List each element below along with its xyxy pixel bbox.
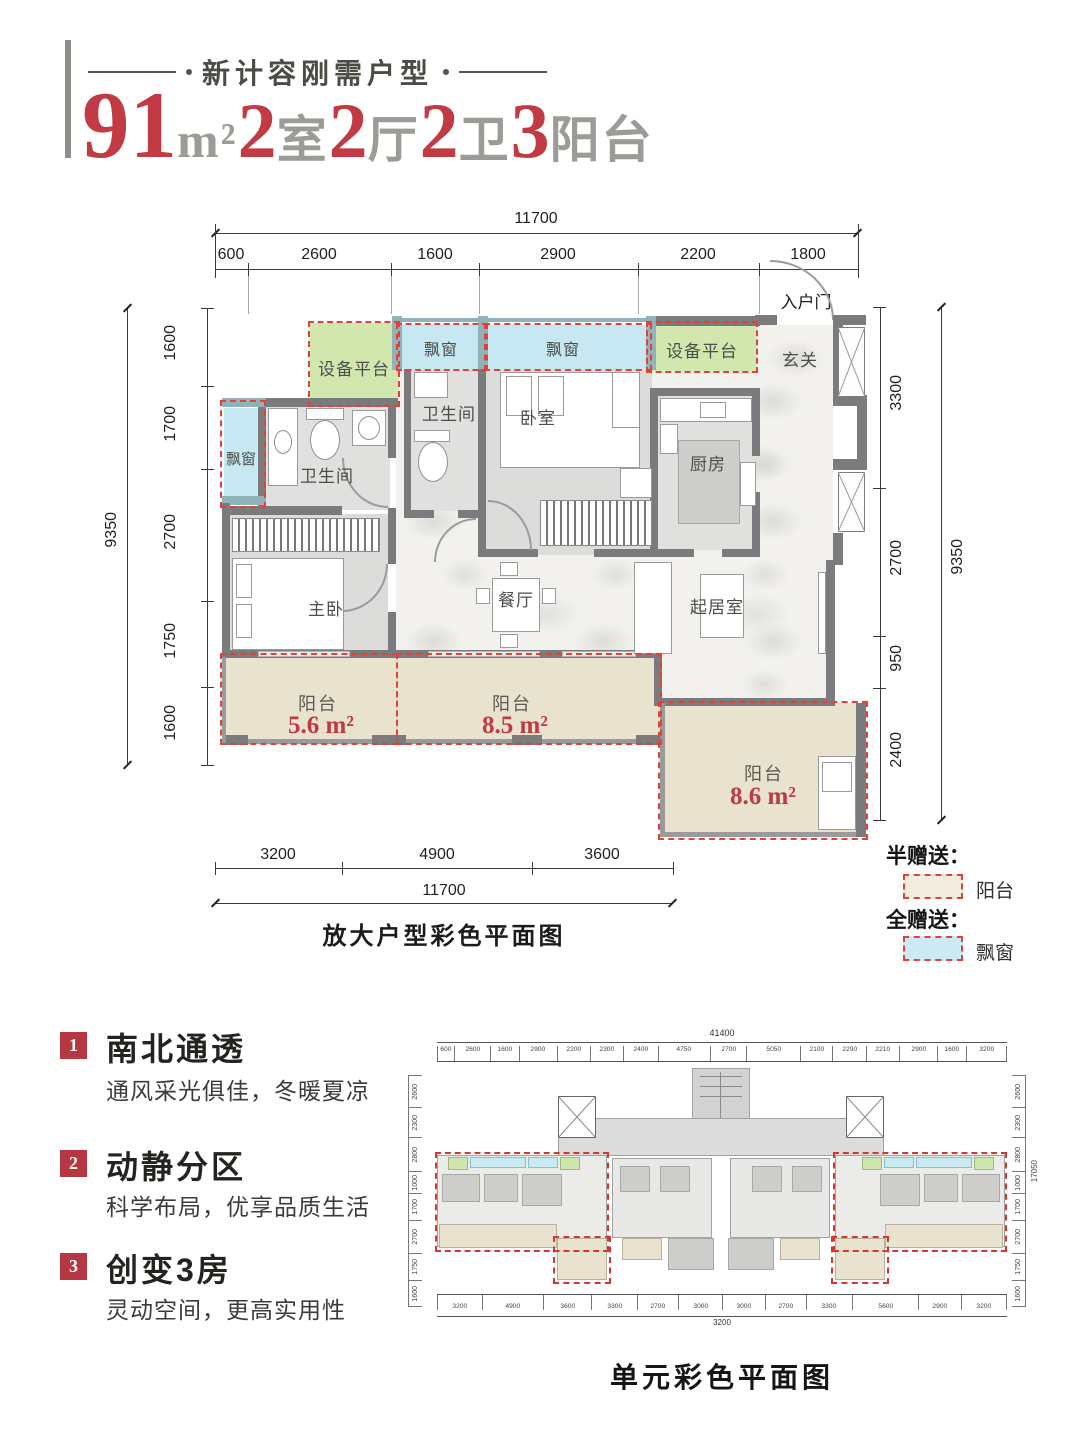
wall-segment [478, 369, 486, 557]
dim-ext [391, 270, 392, 314]
unit-dim-value: 2300 [599, 1046, 614, 1053]
legend-half-swatch [903, 874, 963, 899]
dim-line [215, 868, 673, 869]
unit-room [668, 1238, 714, 1270]
unit-plan-caption: 单元彩色平面图 [570, 1356, 874, 1396]
unit-dim-cell: 2900 [918, 1295, 961, 1310]
legend-half-item: 阳台 [976, 876, 1014, 903]
dim-right-seg-3: 2400 [888, 732, 906, 768]
dim-top-seg-2: 1600 [405, 246, 465, 264]
dim-left-seg-4: 1600 [162, 705, 180, 741]
unit-dim-value: 2700 [651, 1303, 666, 1310]
title-area-unit: m² [177, 115, 238, 165]
unit-dim-value: 1000 [412, 1175, 419, 1191]
unit-dim-line [437, 1316, 1007, 1317]
dim-tick [873, 820, 886, 821]
wardrobe [232, 518, 380, 552]
unit-dim-cell: 2600 [409, 1075, 422, 1107]
unit-dim-value: 3300 [607, 1303, 622, 1310]
shaft-box [838, 472, 865, 532]
toilet-tank [306, 408, 344, 420]
tagline-dot-right [443, 69, 449, 75]
unit-dim-value: 3000 [736, 1303, 751, 1310]
chair [542, 588, 556, 604]
wall-segment [388, 508, 396, 564]
washer-drum [358, 416, 380, 440]
unit-dim-value: 2210 [876, 1046, 891, 1053]
unit-room [752, 1166, 782, 1192]
dim-tick [873, 688, 886, 689]
unit-dim-value: 2100 [809, 1046, 824, 1053]
unit-dim-value: 3000 [693, 1303, 708, 1310]
unit-dim-value: 2900 [911, 1046, 926, 1053]
unit-room [728, 1238, 774, 1270]
room-label-bay-2: 飘窗 [546, 336, 580, 360]
room-label-equip-right: 设备平台 [666, 337, 738, 362]
balcony-2-area: 8.5 m² [482, 712, 548, 740]
unit-dim-cell: 2400 [623, 1046, 657, 1061]
pillow [236, 564, 252, 598]
unit-dim-cell: 2290 [832, 1046, 866, 1061]
nightstand [612, 372, 640, 428]
unit-dim-value: 2290 [842, 1046, 857, 1053]
unit-dim-value: 1600 [412, 1286, 419, 1302]
wall-segment [486, 549, 538, 557]
dim-left-seg-1: 1700 [162, 406, 180, 442]
pillow [236, 604, 252, 638]
room-label-bath-second: 卫生间 [422, 400, 476, 425]
unit-dim-value: 1600 [497, 1046, 512, 1053]
room-label-kitchen: 厨房 [690, 450, 726, 475]
unit-dim-value: 2900 [933, 1303, 948, 1310]
feature-1-desc: 通风采光俱佳，冬暖夏凉 [106, 1072, 370, 1106]
dim-tick [858, 263, 859, 276]
room-label-master-bedroom: 主卧 [308, 595, 344, 620]
unit-dim-value: 2600 [465, 1046, 480, 1053]
unit-dim-cell: 2100 [800, 1046, 832, 1061]
room-label-bath-master: 卫生间 [300, 462, 354, 487]
legend-full-swatch [903, 936, 963, 961]
title-u4: 阳台 [550, 115, 654, 165]
dim-tick [215, 263, 216, 276]
dim-top-seg-3: 2900 [528, 246, 588, 264]
wall-segment [826, 560, 835, 702]
tagline-dot-left [186, 69, 192, 75]
dim-tick [937, 815, 946, 824]
room-label-bay-left: 飘窗 [226, 448, 256, 469]
unit-dim-bottom-segments: 3200 4900 3600 3300 2700 3000 3000 2700 … [437, 1294, 1007, 1310]
title-n1: 2 [238, 92, 277, 170]
page-title: 91 m² 2 室 2 厅 2 卫 3 阳台 [82, 78, 654, 173]
dim-left-total: 9350 [103, 512, 121, 548]
unit-dim-cell: 1600 [937, 1046, 965, 1061]
unit-dim-cell: 3600 [543, 1295, 592, 1310]
dim-tick [201, 765, 214, 766]
wall-segment [222, 503, 230, 657]
toilet-bowl [310, 420, 340, 460]
unit-dim-value: 2700 [721, 1046, 736, 1053]
unit-dim-cell: 600 [437, 1046, 454, 1061]
feature-2-title: 动静分区 [106, 1142, 246, 1188]
unit-stair-line [700, 1096, 742, 1097]
unit-dim-cell: 4750 [658, 1046, 710, 1061]
title-u3: 卫 [459, 115, 511, 165]
unit-dim-cell: 2300 [409, 1107, 422, 1137]
unit-dim-cell: 3300 [806, 1295, 852, 1310]
dim-top-seg-0: 600 [201, 246, 261, 264]
wall-segment [650, 549, 694, 557]
unit-dim-cell: 2800 [1012, 1137, 1025, 1170]
sink-basin [274, 430, 292, 454]
title-n3: 2 [420, 92, 459, 170]
wardrobe [540, 500, 652, 546]
unit-dim-cell: 2900 [899, 1046, 937, 1061]
unit-dim-value: 600 [441, 1046, 452, 1053]
title-u1: 室 [277, 115, 329, 165]
unit-dim-cell: 2210 [866, 1046, 899, 1061]
legend-full-item: 飘窗 [976, 938, 1014, 965]
wall-segment [833, 459, 867, 470]
wall-segment [650, 388, 760, 396]
unit-dim-value: 3200 [979, 1046, 994, 1053]
unit-dim-cell: 3200 [966, 1046, 1007, 1061]
unit-dim-value: 1750 [1015, 1259, 1022, 1275]
header-accent-bar [65, 40, 71, 158]
unit-dim-value: 1000 [1015, 1175, 1022, 1191]
unit-left-gift-outline-step [553, 1236, 611, 1284]
dim-bottom-total: 11700 [414, 882, 474, 900]
wall-segment [594, 549, 656, 557]
unit-dim-cell: 2700 [1012, 1220, 1025, 1253]
unit-dim-value: 1700 [412, 1199, 419, 1215]
unit-dim-top-total: 41400 [690, 1028, 754, 1038]
unit-dim-cell: 2300 [590, 1046, 624, 1061]
title-u2: 厅 [368, 115, 420, 165]
dim-tick [342, 862, 343, 875]
unit-dim-value: 4900 [505, 1303, 520, 1310]
unit-dim-cell: 1600 [490, 1046, 518, 1061]
dim-line [941, 307, 942, 820]
unit-dim-cell: 1700 [1012, 1193, 1025, 1220]
unit-elevator [558, 1096, 596, 1138]
unit-dim-cell: 3000 [722, 1295, 765, 1310]
unit-dim-value: 1600 [1015, 1286, 1022, 1302]
unit-dim-cell: 5600 [852, 1295, 919, 1310]
unit-dim-cell: 2900 [519, 1046, 557, 1061]
unit-room [792, 1166, 822, 1192]
room-label-foyer: 玄关 [782, 346, 818, 371]
unit-dim-value: 3300 [822, 1303, 837, 1310]
wall-segment [404, 510, 434, 518]
title-area-number: 91 [82, 78, 177, 173]
dim-tick [123, 760, 132, 769]
dim-left-seg-0: 1600 [162, 325, 180, 361]
dresser [620, 468, 652, 498]
feature-1-number: 1 [60, 1032, 87, 1059]
sofa [634, 562, 672, 654]
dim-ext [479, 270, 480, 314]
dim-bottom-seg-2: 3600 [572, 846, 632, 864]
dim-top-total: 11700 [436, 210, 636, 228]
unit-dim-cell: 2600 [1012, 1075, 1025, 1107]
unit-dim-cell: 2700 [409, 1220, 422, 1253]
dim-tick [215, 862, 216, 875]
window-frame [486, 318, 650, 322]
unit-elevator [846, 1096, 884, 1138]
unit-dim-value: 4750 [677, 1046, 692, 1053]
title-n4: 3 [511, 92, 550, 170]
toilet-bowl [418, 442, 448, 482]
dim-ext [248, 270, 249, 314]
dim-top-seg-1: 2600 [289, 246, 349, 264]
wall-segment [388, 398, 396, 458]
unit-dim-cell: 1700 [409, 1193, 422, 1220]
dim-right-seg-0: 3300 [888, 375, 906, 411]
room-label-bay-1: 飘窗 [424, 336, 458, 360]
chair [476, 588, 490, 604]
feature-2-number: 2 [60, 1150, 87, 1177]
unit-right-gift-outline-step [831, 1236, 889, 1284]
unit-dim-value: 3600 [560, 1303, 575, 1310]
page: 新计容刚需户型 91 m² 2 室 2 厅 2 卫 3 阳台 11700 600… [0, 0, 1080, 1439]
unit-dim-cell: 3300 [591, 1295, 637, 1310]
unit-dim-cell: 2200 [557, 1046, 590, 1061]
room-label-equip-left: 设备平台 [318, 355, 390, 380]
unit-middle-balcony [780, 1238, 820, 1260]
unit-dim-bottom-sub: 3200 [690, 1318, 754, 1327]
unit-dim-value: 3200 [453, 1303, 468, 1310]
dim-left-seg-3: 1750 [162, 623, 180, 659]
title-n2: 2 [329, 92, 368, 170]
tagline-line-right [459, 71, 547, 73]
toilet-tank [414, 430, 450, 442]
unit-dim-cell: 1750 [409, 1253, 422, 1280]
unit-dim-value: 2600 [1015, 1084, 1022, 1100]
dim-bottom-seg-0: 3200 [248, 846, 308, 864]
dim-tick [873, 307, 886, 308]
unit-dim-cell: 2800 [409, 1137, 422, 1170]
dim-tick [532, 862, 533, 875]
chair [500, 634, 518, 648]
unit-dim-value: 2600 [412, 1084, 419, 1100]
room-label-dining: 餐厅 [498, 586, 534, 611]
dim-tick [201, 469, 214, 470]
unit-dim-cell: 2700 [710, 1046, 747, 1061]
dim-line [215, 233, 858, 234]
unit-dim-value: 2800 [412, 1147, 419, 1163]
unit-dim-value: 2200 [566, 1046, 581, 1053]
dim-line [127, 308, 128, 765]
dim-ext [638, 270, 639, 314]
feature-1-title: 南北通透 [106, 1024, 246, 1070]
unit-dim-value: 2300 [412, 1115, 419, 1131]
dim-right-total: 9350 [949, 539, 967, 575]
unit-dim-cell: 1600 [1012, 1280, 1025, 1307]
unit-dim-top-segments: 600 2600 1600 2900 2200 2300 2400 4750 2… [437, 1046, 1007, 1062]
unit-dim-value: 1600 [944, 1046, 959, 1053]
room-label-living: 起居室 [690, 593, 744, 618]
unit-stair-line [700, 1086, 742, 1087]
dim-bottom-seg-1: 4900 [407, 846, 467, 864]
unit-dim-value: 2700 [1015, 1229, 1022, 1245]
feature-2-desc: 科学布局，优享品质生活 [106, 1188, 370, 1222]
tv-cabinet [818, 572, 826, 654]
unit-dim-cell: 1000 [1012, 1171, 1025, 1194]
unit-room [660, 1166, 690, 1192]
unit-dim-cell: 1750 [1012, 1253, 1025, 1280]
unit-dim-cell: 2600 [454, 1046, 490, 1061]
unit-dim-cell: 1000 [409, 1171, 422, 1194]
unit-dim-value: 2400 [634, 1046, 649, 1053]
unit-dim-value: 2300 [1015, 1115, 1022, 1131]
unit-dim-value: 2700 [778, 1303, 793, 1310]
unit-dim-value: 1700 [1015, 1199, 1022, 1215]
unit-corridor [558, 1118, 884, 1156]
unit-dim-cell: 3200 [961, 1295, 1007, 1310]
dim-tick [673, 862, 674, 875]
dim-tick [668, 898, 677, 907]
unit-dim-value: 2800 [1015, 1147, 1022, 1163]
feature-3-number: 3 [60, 1253, 87, 1280]
kitchen-cabinet [740, 462, 756, 506]
dim-tick [873, 636, 886, 637]
unit-dim-value: 1750 [412, 1259, 419, 1275]
wall-segment [752, 396, 760, 456]
unit-dim-right-segments: 2600 2300 2800 1000 1700 2700 1750 1600 [1012, 1075, 1026, 1307]
dim-tick [201, 687, 214, 688]
dim-top-seg-4: 2200 [668, 246, 728, 264]
feature-3-desc: 灵动空间，更高实用性 [106, 1291, 346, 1325]
unit-room [620, 1166, 650, 1192]
kitchen-sink [700, 402, 726, 418]
unit-dim-cell: 5050 [746, 1046, 800, 1061]
unit-dim-cell: 4900 [482, 1295, 542, 1310]
unit-dim-cell: 3000 [678, 1295, 721, 1310]
wall-segment [458, 510, 486, 518]
dim-line [207, 308, 208, 765]
unit-dim-cell: 2300 [1012, 1107, 1025, 1137]
dim-right-seg-2: 950 [888, 645, 906, 672]
legend-half-title: 半赠送： [886, 840, 970, 870]
unit-dim-cell: 1600 [409, 1280, 422, 1307]
dim-tick [201, 601, 214, 602]
wall-segment [404, 369, 411, 517]
unit-dim-value: 3200 [977, 1303, 992, 1310]
stove [660, 424, 678, 454]
unit-dim-value: 2700 [412, 1229, 419, 1245]
unit-dim-cell: 2700 [637, 1295, 678, 1310]
balcony-1-area: 5.6 m² [288, 712, 354, 740]
window-frame [398, 318, 486, 322]
dim-tick [201, 308, 214, 309]
sink-basin [414, 372, 448, 398]
unit-dim-value: 5050 [766, 1046, 781, 1053]
shaft-box [838, 327, 865, 397]
dim-right-seg-1: 2700 [888, 540, 906, 576]
unit-middle-balcony [622, 1238, 662, 1260]
unit-dim-value: 2900 [531, 1046, 546, 1053]
dim-line [215, 269, 858, 270]
main-plan-caption: 放大户型彩色平面图 [294, 916, 594, 951]
dim-ext [759, 270, 760, 314]
unit-dim-value: 5600 [878, 1303, 893, 1310]
dim-line [880, 307, 881, 820]
legend-full-title: 全赠送： [886, 904, 970, 934]
balcony-3-area: 8.6 m² [730, 783, 796, 811]
unit-dim-line [437, 1042, 1007, 1043]
feature-3-title: 创变3房 [106, 1245, 232, 1291]
unit-dim-left-segments: 2600 2300 2800 1000 1700 2700 1750 1600 [408, 1075, 422, 1307]
dim-line [215, 903, 673, 904]
room-label-bedroom: 卧室 [520, 404, 556, 429]
unit-dim-cell: 3200 [437, 1295, 482, 1310]
unit-dim-side-total: 17050 [1030, 1160, 1039, 1182]
unit-stair-line [700, 1076, 742, 1077]
dim-left-seg-2: 2700 [162, 514, 180, 550]
unit-dim-cell: 2700 [765, 1295, 806, 1310]
chair [500, 562, 518, 576]
dim-tick [873, 488, 886, 489]
dim-tick [201, 386, 214, 387]
